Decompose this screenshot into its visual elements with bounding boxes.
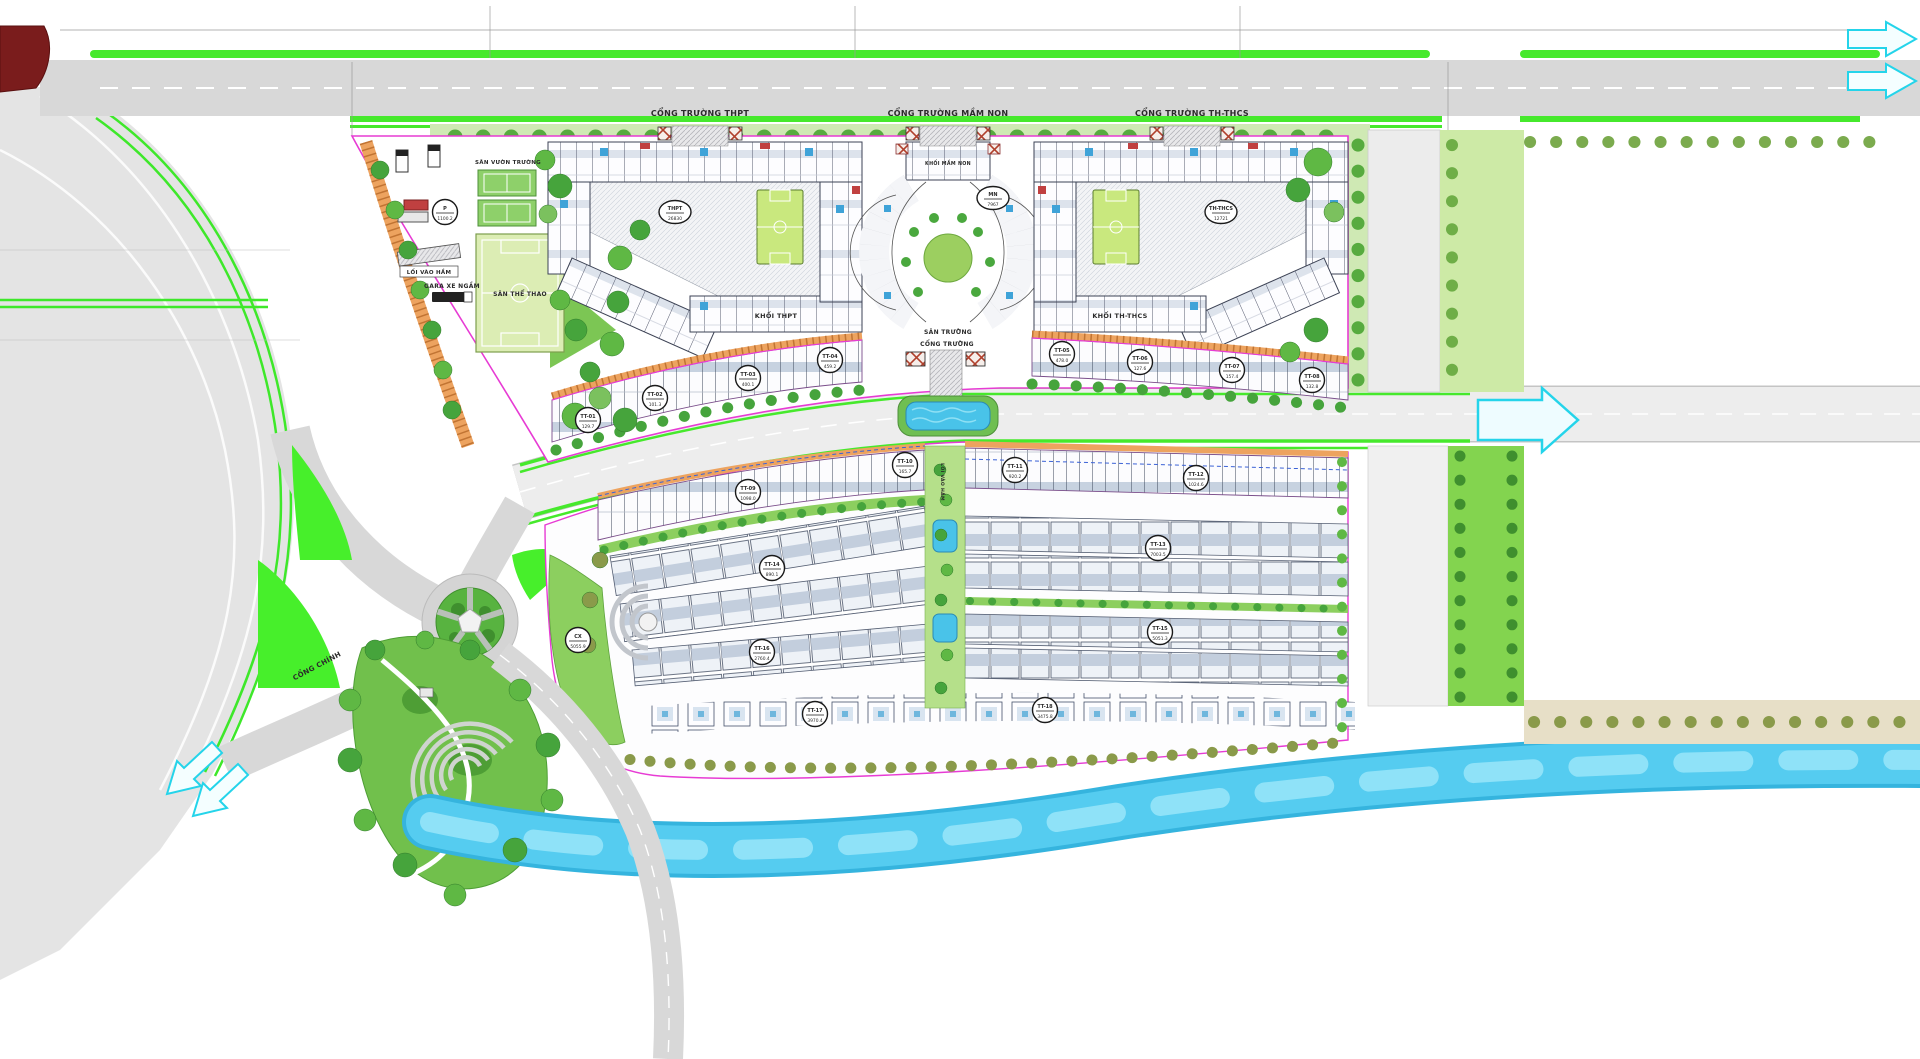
tree bbox=[592, 552, 608, 568]
lot-badge: TT-121024.6 bbox=[1184, 466, 1209, 491]
tree bbox=[613, 408, 637, 432]
east-vertical-road bbox=[1348, 130, 1524, 392]
lot-code: TT-03 bbox=[740, 372, 756, 378]
pond bbox=[933, 614, 957, 642]
tree bbox=[434, 361, 452, 379]
lot-code: CX bbox=[574, 634, 582, 640]
tree bbox=[941, 564, 953, 576]
tree bbox=[1280, 342, 1300, 362]
lot-badge: TT-14890.1 bbox=[760, 556, 785, 581]
tree bbox=[416, 631, 434, 649]
tree bbox=[365, 640, 385, 660]
tree bbox=[580, 362, 600, 382]
lot-badge: TT-091098.0 bbox=[736, 480, 761, 505]
tree bbox=[1324, 202, 1344, 222]
lot-code: TT-05 bbox=[1054, 348, 1070, 354]
tree bbox=[536, 733, 560, 757]
lot-badge: TT-155051.3 bbox=[1148, 620, 1173, 645]
lot-code: TT-09 bbox=[740, 486, 756, 492]
label-sports-field: SÂN THỂ THAO bbox=[493, 290, 547, 298]
lot-area: 12721 bbox=[1214, 216, 1228, 222]
lot-badge: TT-162760.4 bbox=[750, 640, 775, 665]
tree bbox=[608, 246, 632, 270]
lot-code: TT-13 bbox=[1150, 542, 1166, 548]
tree bbox=[443, 401, 461, 419]
lot-code: THPT bbox=[668, 206, 683, 212]
lot-badge: TT-07157.4 bbox=[1220, 358, 1245, 383]
green-connector bbox=[925, 446, 965, 708]
lot-badge: TT-06127.6 bbox=[1128, 350, 1153, 375]
tree bbox=[548, 174, 572, 198]
lot-badge: P1100.2 bbox=[433, 200, 458, 225]
lot-badge: TT-137003.5 bbox=[1146, 536, 1171, 561]
lot-badge: TT-08132.8 bbox=[1300, 368, 1325, 393]
lot-code: MN bbox=[988, 192, 997, 198]
lot-badge: TT-183475.8 bbox=[1033, 698, 1058, 723]
residential-estate bbox=[545, 442, 1355, 778]
tree bbox=[371, 161, 389, 179]
lot-area: 127.6 bbox=[1134, 366, 1147, 372]
tree bbox=[1304, 318, 1328, 342]
lot-badge: TT-01129.7 bbox=[576, 408, 601, 433]
lot-code: TH-THCS bbox=[1209, 206, 1233, 212]
lot-area: 890.1 bbox=[766, 572, 779, 578]
lot-area: 3970.4 bbox=[807, 718, 823, 724]
lot-area: 5051.3 bbox=[1152, 636, 1168, 642]
lot-area: 26830 bbox=[668, 216, 682, 222]
lot-code: TT-02 bbox=[647, 392, 663, 398]
label-cong-truong: CỔNG TRƯỜNG bbox=[920, 340, 974, 348]
tree bbox=[339, 689, 361, 711]
label-garden: SÂN VƯỜN TRƯỜNG bbox=[475, 159, 541, 166]
west-road-area bbox=[0, 86, 300, 980]
lot-badge: THPT26830 bbox=[659, 201, 691, 224]
lot-badge: TT-02101.3 bbox=[643, 386, 668, 411]
lot-code: TT-10 bbox=[897, 459, 913, 465]
basketball-court bbox=[757, 190, 803, 264]
label-khoi-thpt: KHỐI THPT bbox=[755, 310, 798, 320]
lot-area: 920.2 bbox=[1009, 474, 1022, 480]
lot-code: TT-17 bbox=[807, 708, 823, 714]
lot-badge: TT-11920.2 bbox=[1003, 458, 1028, 483]
lot-badge: TT-03400.1 bbox=[736, 366, 761, 391]
tree bbox=[1304, 148, 1332, 176]
tree bbox=[509, 679, 531, 701]
lot-badge: TH-THCS12721 bbox=[1205, 201, 1237, 224]
tree bbox=[941, 649, 953, 661]
tree bbox=[386, 201, 404, 219]
tree bbox=[503, 838, 527, 862]
tree bbox=[935, 529, 947, 541]
tree bbox=[539, 205, 557, 223]
lot-area: 1024.6 bbox=[1188, 482, 1204, 488]
lot-area: 478.0 bbox=[1056, 358, 1069, 364]
central-lawn-circle bbox=[924, 234, 972, 282]
tree bbox=[630, 220, 650, 240]
lot-area: 129.7 bbox=[582, 424, 595, 430]
tree bbox=[399, 241, 417, 259]
tree bbox=[582, 592, 598, 608]
tree bbox=[541, 789, 563, 811]
lot-area: 459.2 bbox=[824, 364, 837, 370]
lot-code: TT-14 bbox=[764, 562, 780, 568]
tree bbox=[607, 291, 629, 313]
lot-code: TT-15 bbox=[1152, 626, 1168, 632]
lot-code: TT-18 bbox=[1037, 704, 1053, 710]
lot-badge: TT-173970.4 bbox=[803, 702, 828, 727]
tree bbox=[338, 748, 362, 772]
lot-area: 5055.9 bbox=[570, 644, 586, 650]
gate-median-pond bbox=[898, 396, 998, 436]
lot-code: TT-07 bbox=[1224, 364, 1240, 370]
tree bbox=[935, 682, 947, 694]
master-plan-canvas: CỔNG TRƯỜNG THPT CỔNG TRƯỜNG MẦM NON CỔN… bbox=[0, 0, 1920, 1059]
tree bbox=[393, 853, 417, 877]
lot-area: 165.7 bbox=[899, 469, 912, 475]
tree bbox=[550, 290, 570, 310]
lot-code: TT-06 bbox=[1132, 356, 1148, 362]
site-plan-drawing: CỔNG TRƯỜNG THPT CỔNG TRƯỜNG MẦM NON CỔN… bbox=[0, 0, 1920, 1059]
lot-badge: TT-04459.2 bbox=[818, 348, 843, 373]
tree bbox=[1286, 178, 1310, 202]
lot-area: 1100.2 bbox=[437, 216, 453, 222]
lot-code: TT-12 bbox=[1188, 472, 1204, 478]
label-garage: GARA XE NGẦM bbox=[424, 281, 480, 290]
lot-code: P bbox=[443, 206, 447, 212]
tree bbox=[589, 387, 611, 409]
lot-code: TT-11 bbox=[1007, 464, 1023, 470]
lot-area: 101.3 bbox=[649, 402, 662, 408]
lot-badge: MN7967 bbox=[977, 187, 1009, 210]
label-khoi-ththcs: KHỐI TH-THCS bbox=[1092, 310, 1147, 320]
lot-code: TT-16 bbox=[754, 646, 770, 652]
tree bbox=[935, 594, 947, 606]
tree bbox=[600, 332, 624, 356]
tree bbox=[354, 809, 376, 831]
label-san-truong: SÂN TRƯỜNG bbox=[924, 329, 972, 336]
tree bbox=[565, 319, 587, 341]
lot-area: 157.4 bbox=[1226, 374, 1239, 380]
lot-area: 3475.8 bbox=[1037, 714, 1053, 720]
basketball-court bbox=[1093, 190, 1139, 264]
lot-code: TT-08 bbox=[1304, 374, 1320, 380]
lot-code: TT-04 bbox=[822, 354, 838, 360]
lot-area: 7003.5 bbox=[1150, 552, 1166, 558]
tree bbox=[460, 640, 480, 660]
lot-area: 400.1 bbox=[742, 382, 755, 388]
lot-code: TT-01 bbox=[580, 414, 596, 420]
lot-area: 7967 bbox=[987, 202, 998, 208]
lot-badge: CX5055.9 bbox=[566, 628, 591, 653]
lot-area: 1098.0 bbox=[740, 496, 756, 502]
lot-area: 132.8 bbox=[1306, 384, 1319, 390]
lot-badge: TT-05478.0 bbox=[1050, 342, 1075, 367]
lot-badge: TT-10165.7 bbox=[893, 453, 918, 478]
tree bbox=[423, 321, 441, 339]
lot-area: 2760.4 bbox=[754, 656, 770, 662]
east-greenway bbox=[1368, 446, 1920, 744]
tree bbox=[444, 884, 466, 906]
